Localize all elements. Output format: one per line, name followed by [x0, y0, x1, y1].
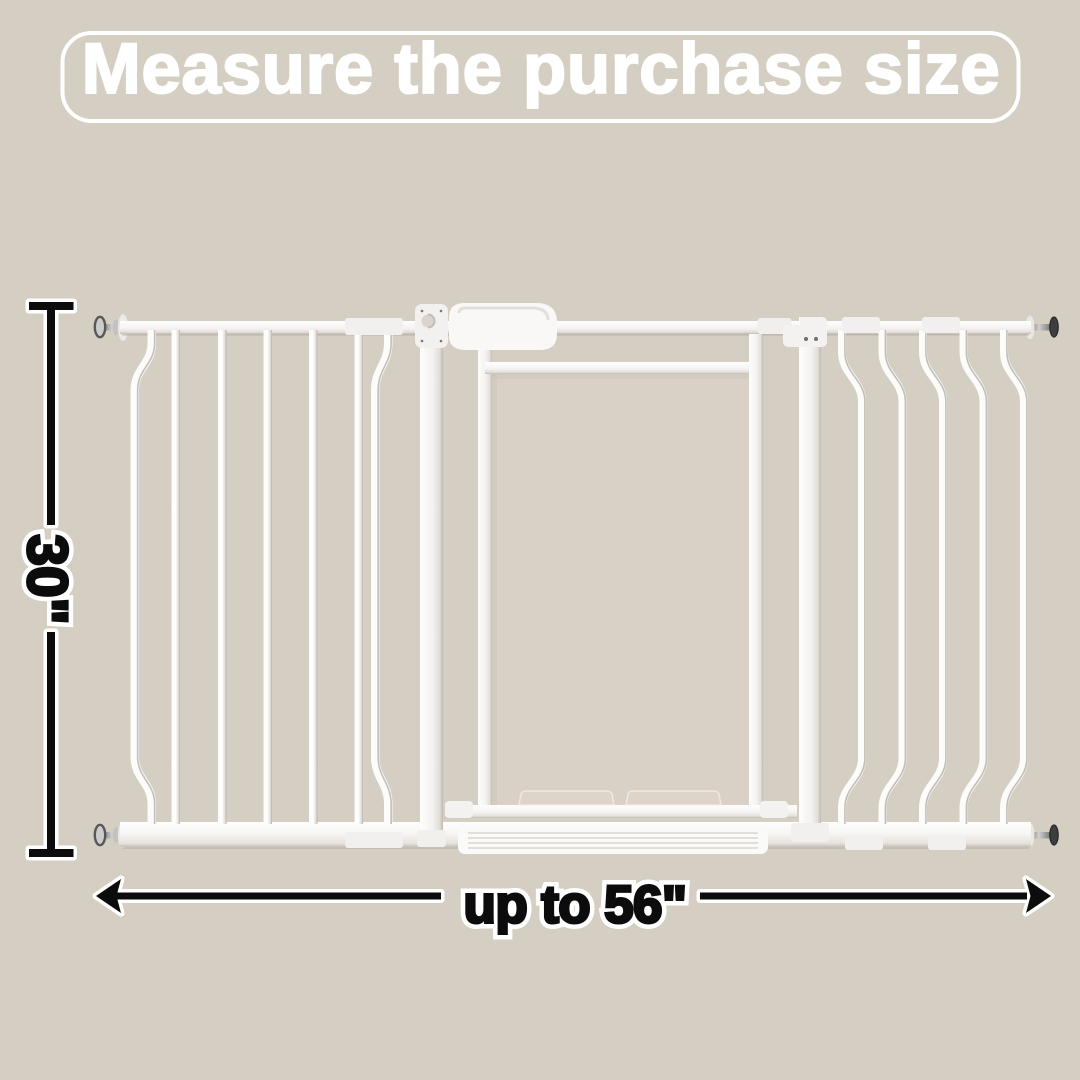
svg-text:Measure the purchase size: Measure the purchase size: [82, 30, 1001, 109]
svg-text:30": 30": [15, 534, 79, 624]
svg-text:up to 56": up to 56": [464, 876, 687, 935]
